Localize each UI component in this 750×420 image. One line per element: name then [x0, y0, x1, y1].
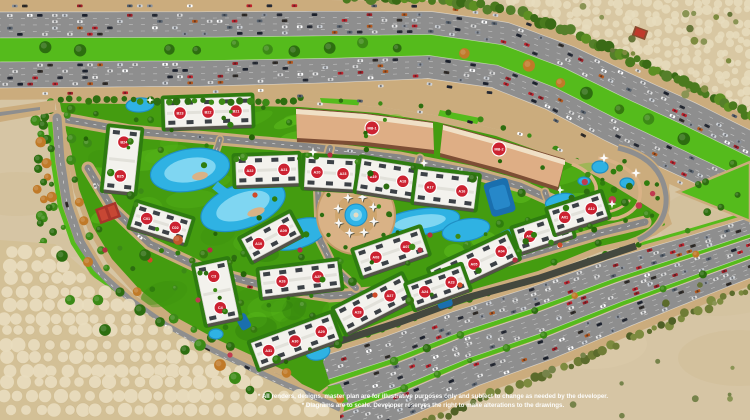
svg-text:A09: A09 [280, 229, 287, 233]
svg-text:A20: A20 [314, 171, 321, 175]
svg-text:B23: B23 [177, 111, 184, 115]
svg-text:A30: A30 [292, 339, 299, 343]
svg-text:A05: A05 [471, 262, 478, 266]
svg-text:MB-1: MB-1 [367, 126, 376, 130]
svg-text:A28: A28 [355, 311, 362, 315]
svg-text:A26: A26 [279, 280, 286, 284]
svg-text:A10: A10 [255, 242, 262, 246]
svg-text:A23: A23 [448, 281, 455, 285]
svg-text:A23: A23 [340, 172, 347, 176]
svg-text:* All renders, designs, master: * All renders, designs, master plan are … [258, 393, 608, 400]
svg-text:B24: B24 [120, 141, 128, 145]
svg-text:A27: A27 [387, 294, 394, 298]
svg-text:A01: A01 [561, 216, 568, 220]
svg-text:A21: A21 [281, 168, 288, 172]
svg-text:B22: B22 [205, 110, 212, 114]
svg-text:A24: A24 [421, 290, 429, 294]
svg-text:A31: A31 [265, 349, 272, 353]
svg-text:C02: C02 [172, 226, 179, 230]
svg-text:A07: A07 [403, 245, 410, 249]
svg-text:A17: A17 [427, 186, 434, 190]
svg-text:C01: C01 [143, 217, 150, 221]
svg-text:A16: A16 [458, 189, 465, 193]
svg-text:B21: B21 [233, 109, 240, 113]
svg-text:A22: A22 [247, 169, 254, 173]
svg-text:A08: A08 [372, 256, 379, 260]
svg-text:MB-2: MB-2 [494, 147, 503, 151]
svg-text:* Diagrams are to scale. Devel: * Diagrams are to scale. Developer reser… [302, 402, 565, 409]
svg-text:A29: A29 [318, 330, 325, 334]
svg-text:B25: B25 [117, 174, 124, 178]
svg-text:A18: A18 [399, 180, 406, 184]
svg-text:A04: A04 [498, 250, 506, 254]
svg-text:A12: A12 [588, 207, 595, 211]
svg-text:C3: C3 [211, 275, 216, 279]
